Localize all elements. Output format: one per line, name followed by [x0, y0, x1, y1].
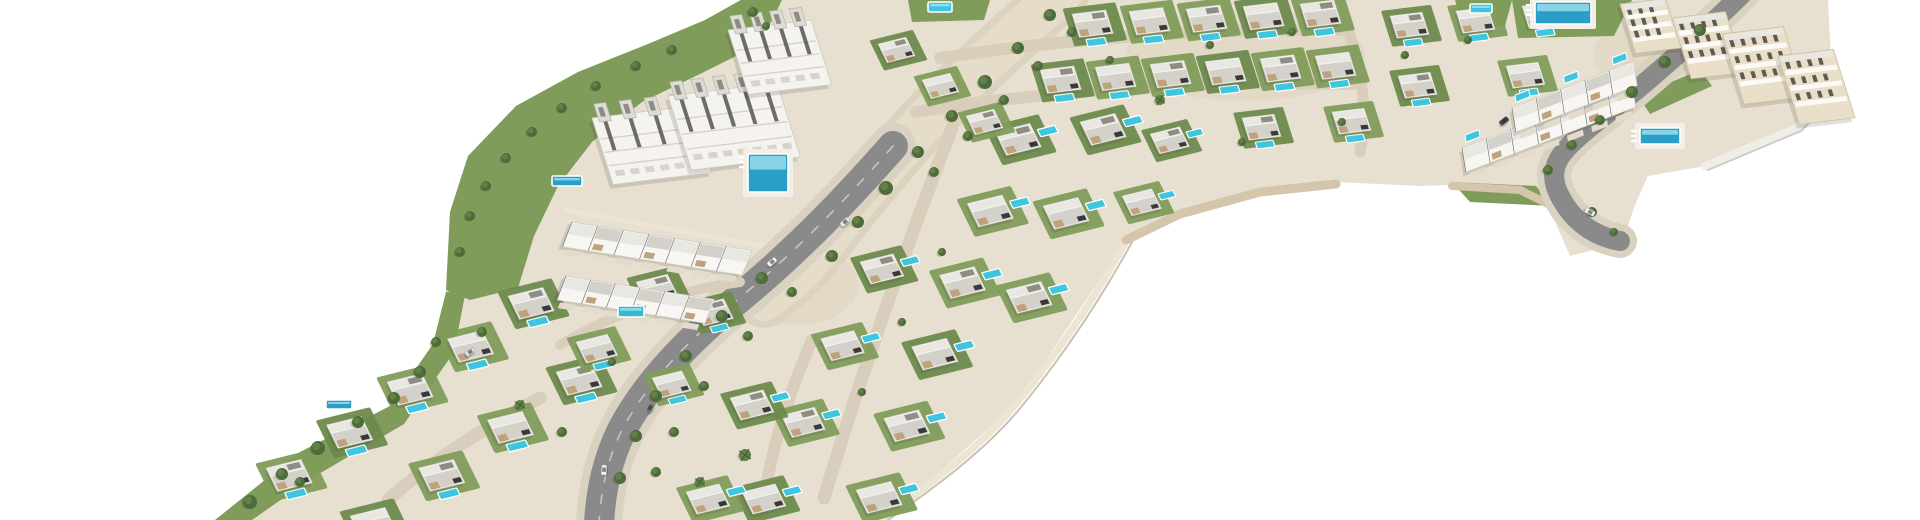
lap-pool-apartments	[552, 176, 582, 186]
pool-townhouse-court	[618, 306, 644, 317]
tree-canopy-highlight	[466, 212, 472, 218]
tree-canopy-highlight	[1068, 28, 1074, 34]
tree	[413, 366, 427, 378]
apartment-balcony	[722, 150, 733, 157]
tree-canopy-highlight	[1611, 229, 1615, 233]
tree-canopy-highlight	[1596, 116, 1602, 122]
pool-highlight	[1642, 130, 1678, 135]
apartment-balcony	[810, 73, 821, 80]
tree-canopy-highlight	[482, 182, 488, 188]
tree-canopy-highlight	[757, 273, 764, 280]
tree-canopy-highlight	[632, 62, 638, 68]
apartment-balcony	[693, 153, 704, 160]
tree-canopy-highlight	[478, 328, 484, 334]
tree-canopy-highlight	[1045, 10, 1052, 17]
tree-canopy-highlight	[1013, 43, 1020, 50]
tree-canopy-highlight	[913, 147, 920, 154]
sun-lounger	[1631, 135, 1636, 137]
tree-canopy-highlight	[859, 389, 863, 393]
tree	[310, 441, 326, 455]
tree-canopy-highlight	[1544, 166, 1550, 172]
apartment-balcony	[659, 164, 670, 171]
villa-window	[1070, 83, 1079, 88]
apartment-balcony	[644, 166, 655, 173]
apartment-balcony	[674, 162, 685, 169]
tree-canopy-highlight	[652, 468, 658, 474]
tree-canopy-highlight	[853, 217, 860, 224]
villa-window	[1418, 29, 1426, 34]
tree-canopy-highlight	[899, 319, 903, 323]
tree-canopy-highlight	[558, 428, 564, 434]
pool-highlight	[1537, 4, 1589, 11]
villa-window	[1360, 125, 1368, 130]
tree-canopy-highlight	[1402, 52, 1406, 56]
sun-lounger	[1631, 130, 1636, 132]
villa-window	[1270, 131, 1278, 136]
pool-highlight	[620, 308, 642, 311]
villa-window	[1330, 17, 1339, 22]
pool-highlight	[328, 402, 350, 404]
tree-canopy-highlight	[749, 8, 755, 14]
apartment-balcony	[782, 143, 793, 150]
tree-canopy-highlight	[964, 132, 970, 138]
villa-window	[1102, 27, 1111, 32]
tree-canopy-highlight	[312, 442, 320, 450]
tree-canopy-highlight	[415, 367, 422, 374]
apartment-balcony	[630, 168, 641, 175]
tree-canopy-highlight	[615, 473, 622, 480]
villa-window	[1180, 78, 1189, 83]
tree-canopy-highlight	[880, 182, 888, 190]
pool-top-edge-2	[1470, 4, 1492, 13]
tree-canopy-highlight	[1568, 141, 1574, 147]
tree-canopy-highlight	[744, 332, 750, 338]
pool-water	[928, 2, 952, 12]
tree-canopy-highlight	[670, 428, 676, 434]
tree-canopy-highlight	[979, 76, 987, 84]
pool-water	[1470, 4, 1492, 13]
tree-canopy-highlight	[296, 478, 302, 484]
apartment-balcony	[780, 76, 791, 83]
tree-canopy-highlight	[763, 23, 767, 27]
villa-window	[1534, 79, 1542, 84]
pool-highlight	[930, 4, 950, 6]
pool-highlight	[750, 156, 786, 170]
tree-canopy-highlight	[788, 288, 794, 294]
villa-window	[1290, 72, 1299, 77]
tree-canopy-highlight	[668, 46, 674, 52]
tree-canopy-highlight	[1239, 139, 1243, 143]
tree-canopy-highlight	[1034, 62, 1040, 68]
apartment-balcony	[615, 169, 626, 176]
tree-canopy-highlight	[651, 391, 658, 398]
apartment-balcony	[708, 152, 719, 159]
tree-canopy-highlight	[681, 351, 688, 358]
villa-window	[1345, 69, 1354, 74]
tree-canopy-highlight	[1107, 57, 1111, 61]
tree-canopy-highlight	[700, 382, 706, 388]
apartment-balcony	[750, 80, 761, 87]
villa-window	[1484, 24, 1492, 29]
pool-water	[552, 176, 582, 186]
tree-canopy-highlight	[947, 111, 954, 118]
tree-canopy-highlight	[930, 168, 936, 174]
pool-highlight	[554, 178, 580, 180]
tree-canopy-highlight	[717, 311, 724, 318]
tree-canopy-highlight	[353, 417, 360, 424]
development-render-canvas	[0, 0, 1920, 520]
masterplan-aerial-render	[0, 0, 1920, 520]
communal-pool-right-road	[1631, 123, 1685, 149]
tree-canopy-highlight	[939, 249, 943, 253]
pool-water	[326, 400, 352, 409]
tree-canopy-highlight	[558, 104, 564, 110]
tree-canopy-highlight	[502, 154, 508, 160]
tree-canopy-highlight	[592, 82, 598, 88]
pool-water	[618, 306, 644, 317]
communal-pool-upper-right	[1526, 0, 1596, 29]
tree-canopy-highlight	[244, 496, 252, 504]
sun-lounger	[1526, 4, 1531, 6]
villa-window	[1235, 75, 1244, 80]
villa-window	[1426, 89, 1434, 94]
tree-canopy-highlight	[1000, 96, 1006, 102]
tree-canopy-highlight	[528, 128, 534, 134]
tree-canopy-highlight	[1207, 42, 1211, 46]
lap-pool-left-band	[326, 400, 352, 409]
pool-highlight	[1472, 6, 1490, 8]
tree-canopy-highlight	[631, 431, 638, 438]
sun-lounger	[739, 166, 744, 168]
tree-canopy-highlight	[1465, 37, 1469, 41]
sun-lounger	[739, 156, 744, 158]
tree-canopy-highlight	[456, 248, 462, 254]
tree-canopy-highlight	[609, 359, 613, 363]
tree-canopy-highlight	[1339, 119, 1343, 123]
tree-canopy-highlight	[389, 393, 396, 400]
tree-canopy-highlight	[1627, 87, 1634, 94]
sun-lounger	[1631, 140, 1636, 142]
tree-canopy-highlight	[277, 469, 284, 476]
villa-window	[1273, 20, 1282, 25]
tree-canopy-highlight	[827, 251, 834, 258]
sun-lounger	[1526, 9, 1531, 11]
sun-lounger	[739, 161, 744, 163]
tree-canopy-highlight	[1695, 25, 1702, 32]
apartment-balcony	[795, 74, 806, 81]
tree-canopy-highlight	[1660, 57, 1667, 64]
villa-window	[1159, 25, 1168, 30]
sun-lounger	[1526, 14, 1531, 16]
apartment-balcony	[765, 78, 776, 85]
villa-window	[1216, 22, 1225, 27]
tree-canopy-highlight	[1289, 29, 1293, 33]
communal-pool-main	[739, 149, 793, 197]
palm-tree	[738, 449, 752, 461]
car-cabin	[602, 467, 606, 472]
tree-canopy-highlight	[432, 338, 438, 344]
pool-top-edge-1	[928, 2, 952, 12]
villa-window	[1125, 80, 1134, 85]
